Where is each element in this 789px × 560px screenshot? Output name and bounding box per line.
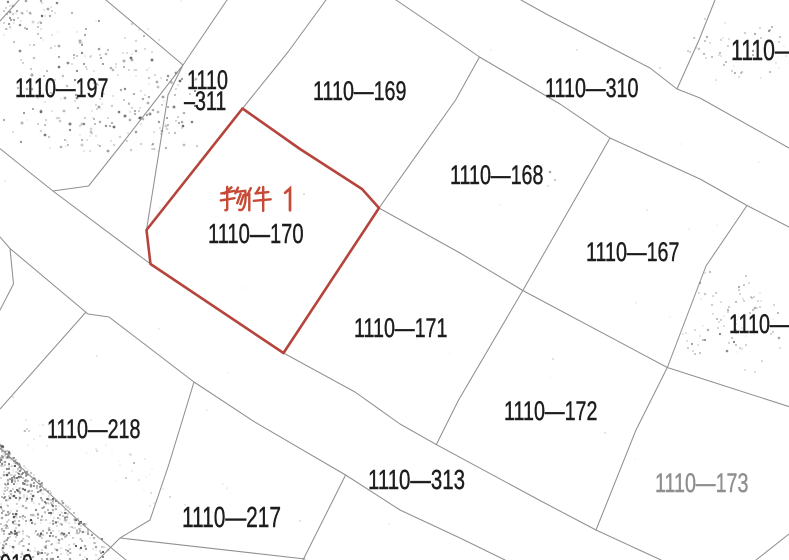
svg-text:1110—310: 1110—310 (545, 74, 638, 104)
svg-text:1110—218: 1110—218 (47, 415, 140, 445)
svg-text:–311: –311 (184, 87, 226, 117)
svg-text:1110—168: 1110—168 (450, 161, 543, 191)
svg-text:1110—169: 1110—169 (313, 77, 406, 107)
svg-text:1110—197: 1110—197 (15, 74, 108, 104)
svg-text:1110—: 1110— (729, 310, 789, 340)
svg-text:1110—172: 1110—172 (504, 397, 597, 427)
svg-text:1110—: 1110— (731, 35, 789, 67)
svg-text:1110—173: 1110—173 (655, 469, 748, 499)
svg-text:1110—170: 1110—170 (208, 219, 304, 250)
svg-text:1110—313: 1110—313 (368, 465, 465, 496)
svg-text:1110—217: 1110—217 (182, 502, 281, 534)
svg-text:1110—171: 1110—171 (354, 314, 447, 344)
svg-text:1110—167: 1110—167 (586, 238, 679, 268)
svg-text:910: 910 (0, 550, 33, 560)
